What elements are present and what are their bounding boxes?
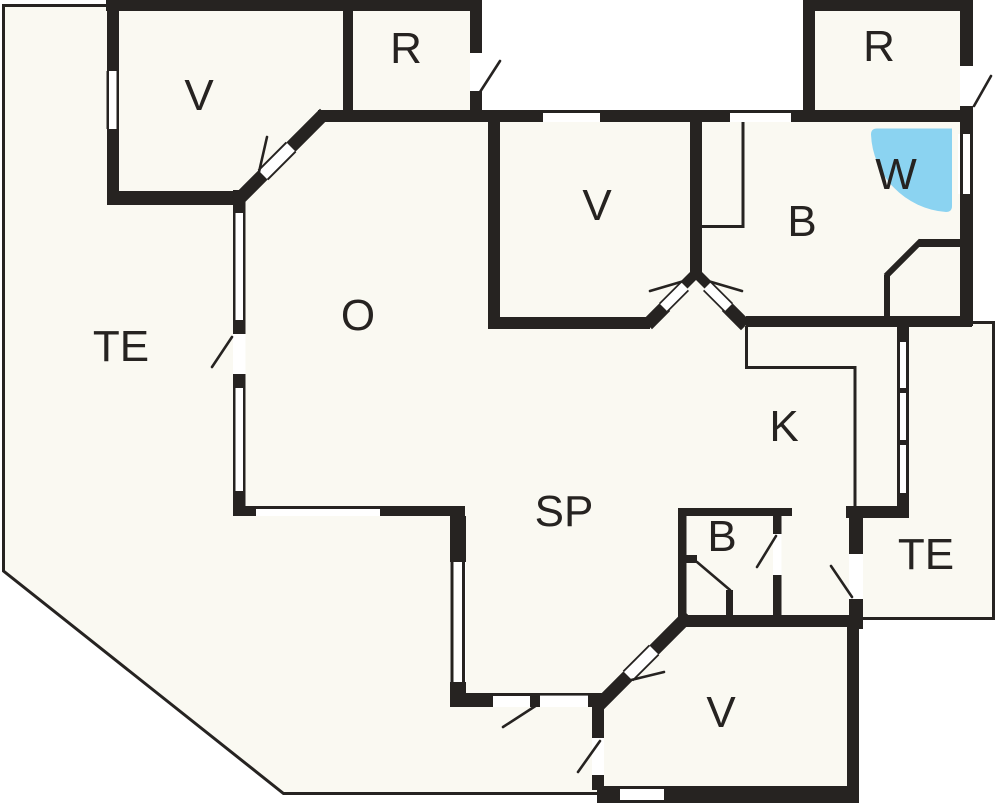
svg-text:W: W: [875, 150, 917, 199]
svg-text:O: O: [341, 291, 375, 340]
svg-text:B: B: [787, 197, 816, 246]
svg-text:SP: SP: [535, 487, 594, 536]
svg-text:R: R: [390, 24, 422, 73]
svg-text:K: K: [769, 402, 798, 451]
svg-text:R: R: [863, 22, 895, 71]
svg-text:V: V: [582, 181, 612, 230]
svg-text:B: B: [707, 512, 736, 561]
svg-text:TE: TE: [93, 322, 149, 371]
svg-text:V: V: [706, 688, 736, 737]
svg-text:TE: TE: [898, 530, 954, 579]
svg-text:V: V: [184, 71, 214, 120]
